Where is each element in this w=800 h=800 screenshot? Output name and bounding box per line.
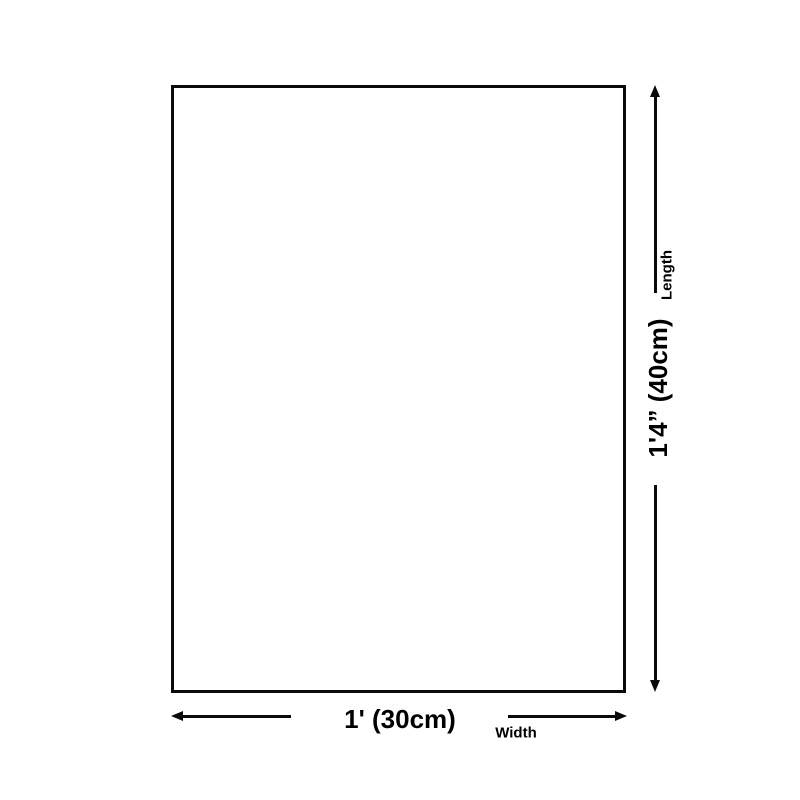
length-dimension-line-bottom [654, 485, 657, 682]
width-axis-label: Width [495, 726, 537, 741]
length-dimension-line-top [654, 95, 657, 293]
product-outline-rectangle [171, 85, 626, 693]
dimension-diagram: Length 1'4” (40cm) 1' (30cm) Width [0, 0, 800, 800]
width-dimension-line-left [182, 715, 291, 718]
width-dimension-value: 1' (30cm) [344, 706, 456, 732]
length-dimension-value: 1'4” (40cm) [645, 318, 671, 457]
arrow-down-icon [650, 680, 660, 692]
width-dimension-line-right [508, 715, 616, 718]
arrow-right-icon [615, 711, 627, 721]
length-axis-label: Length [660, 250, 675, 300]
